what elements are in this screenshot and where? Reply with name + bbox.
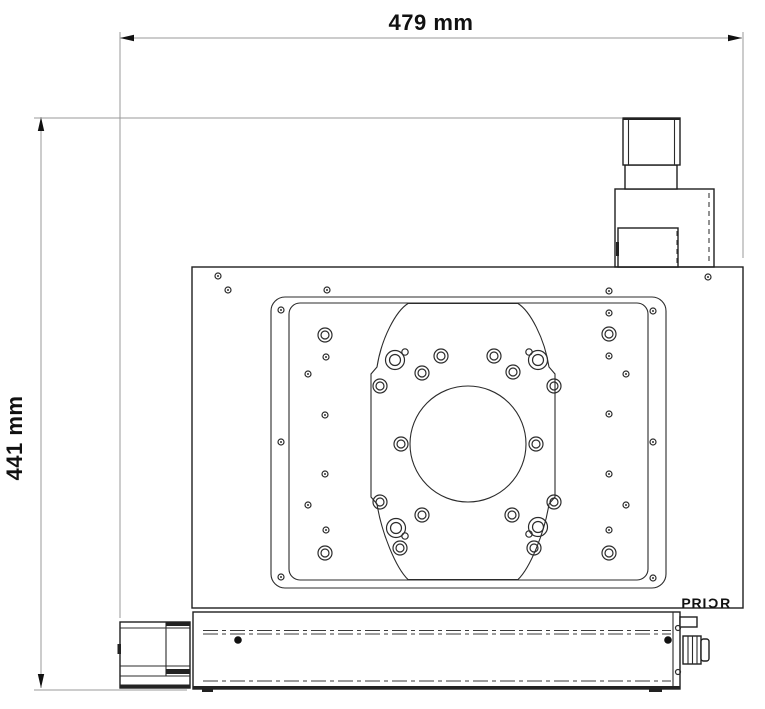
hole-marker (434, 349, 448, 363)
hole-marker (227, 289, 229, 291)
hole-marker (324, 473, 326, 475)
stage-body-outline (192, 267, 743, 608)
hole-marker (608, 312, 610, 314)
width-dimension-label: 479 mm (389, 10, 474, 35)
hole-marker (550, 382, 558, 390)
hole-marker (390, 355, 401, 366)
drawing-svg: PRIƆR 479 mm 441 mm (0, 0, 765, 709)
hole-marker (526, 349, 532, 355)
lower-motor-assembly (118, 622, 191, 688)
hole-marker (533, 522, 544, 533)
arrow-right-icon (728, 35, 742, 41)
hole-marker (529, 437, 543, 451)
power-connector (683, 636, 709, 664)
hole-marker (402, 533, 408, 539)
hole-marker (318, 546, 332, 560)
hole-marker (605, 330, 613, 338)
arrow-down-icon (38, 674, 44, 688)
stage-body (192, 267, 743, 608)
hole-marker (376, 382, 384, 390)
arrow-up-icon (38, 117, 44, 131)
top-plate-inner (289, 303, 648, 580)
hole-marker (280, 309, 282, 311)
hole-marker (402, 349, 408, 355)
hole-marker (487, 349, 501, 363)
upper-motor-assembly (615, 118, 714, 268)
hole-marker (415, 508, 429, 522)
hole-marker (664, 636, 672, 644)
foot-right (649, 689, 662, 693)
hole-marker (437, 352, 445, 360)
hole-marker (418, 369, 426, 377)
hole-marker (396, 544, 404, 552)
hole-marker (324, 414, 326, 416)
hole-marker (393, 541, 407, 555)
hole-marker (325, 356, 327, 358)
hole-marker (217, 275, 219, 277)
hole-marker (373, 379, 387, 393)
hole-marker (608, 355, 610, 357)
hole-marker (321, 549, 329, 557)
prior-logo: PRIƆR (681, 595, 731, 611)
hole-marker (652, 577, 654, 579)
hole-marker (280, 441, 282, 443)
hole-marker (608, 473, 610, 475)
hole-marker (652, 441, 654, 443)
hole-marker (415, 366, 429, 380)
hole-marker (490, 352, 498, 360)
hole-marker (307, 373, 309, 375)
hole-marker (418, 511, 426, 519)
hole-marker (605, 549, 613, 557)
hole-marker (234, 636, 242, 644)
hole-marker (529, 518, 548, 537)
arrow-left-icon (120, 35, 134, 41)
hole-marker (602, 327, 616, 341)
hole-marker (509, 368, 517, 376)
hole-marker (394, 437, 408, 451)
hole-marker (625, 504, 627, 506)
hole-marker (625, 373, 627, 375)
hole-marker (326, 289, 328, 291)
hole-marker (652, 310, 654, 312)
hole-marker (608, 529, 610, 531)
hole-marker (533, 355, 544, 366)
hole-marker (321, 331, 329, 339)
central-aperture (410, 386, 526, 502)
hole-marker (532, 440, 540, 448)
foot-left (202, 689, 213, 693)
hole-marker (508, 511, 516, 519)
hole-marker (547, 379, 561, 393)
hole-marker (547, 495, 561, 509)
stage-outline-drawing: PRIƆR 479 mm 441 mm (0, 0, 765, 709)
hole-marker (397, 440, 405, 448)
hole-marker (307, 504, 309, 506)
hole-marker (376, 498, 384, 506)
base-step-bracket (680, 617, 697, 627)
hole-marker (280, 576, 282, 578)
hole-marker (318, 328, 332, 342)
base-rail (193, 612, 697, 692)
height-dimension-label: 441 mm (2, 396, 27, 481)
hole-marker (325, 529, 327, 531)
hole-marker (602, 546, 616, 560)
hole-marker (608, 290, 610, 292)
hole-marker (608, 413, 610, 415)
hole-marker (505, 508, 519, 522)
hole-marker (391, 523, 402, 534)
hole-marker (707, 276, 709, 278)
hole-marker (506, 365, 520, 379)
